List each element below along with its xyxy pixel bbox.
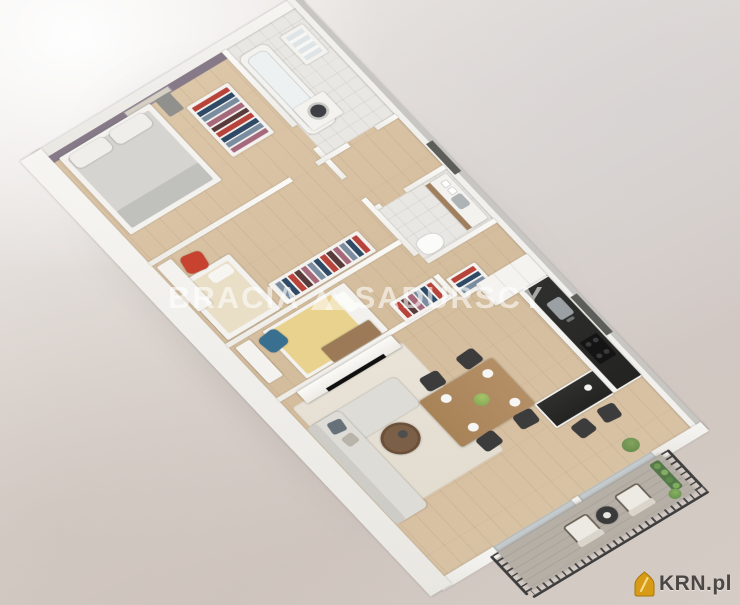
floorplan-render-image: BRACIA SADURSCY KRN.pl [0, 0, 740, 605]
brand-watermark: BRACIA SADURSCY [168, 280, 545, 316]
krn-logo: KRN.pl [633, 571, 732, 597]
watermark-text-right: SADURSCY [355, 280, 545, 316]
watermark-text-left: BRACIA [168, 280, 301, 316]
krn-logo-text: KRN.pl [659, 572, 732, 596]
gold-house-icon [633, 571, 656, 597]
double-triangle-icon [310, 285, 346, 311]
